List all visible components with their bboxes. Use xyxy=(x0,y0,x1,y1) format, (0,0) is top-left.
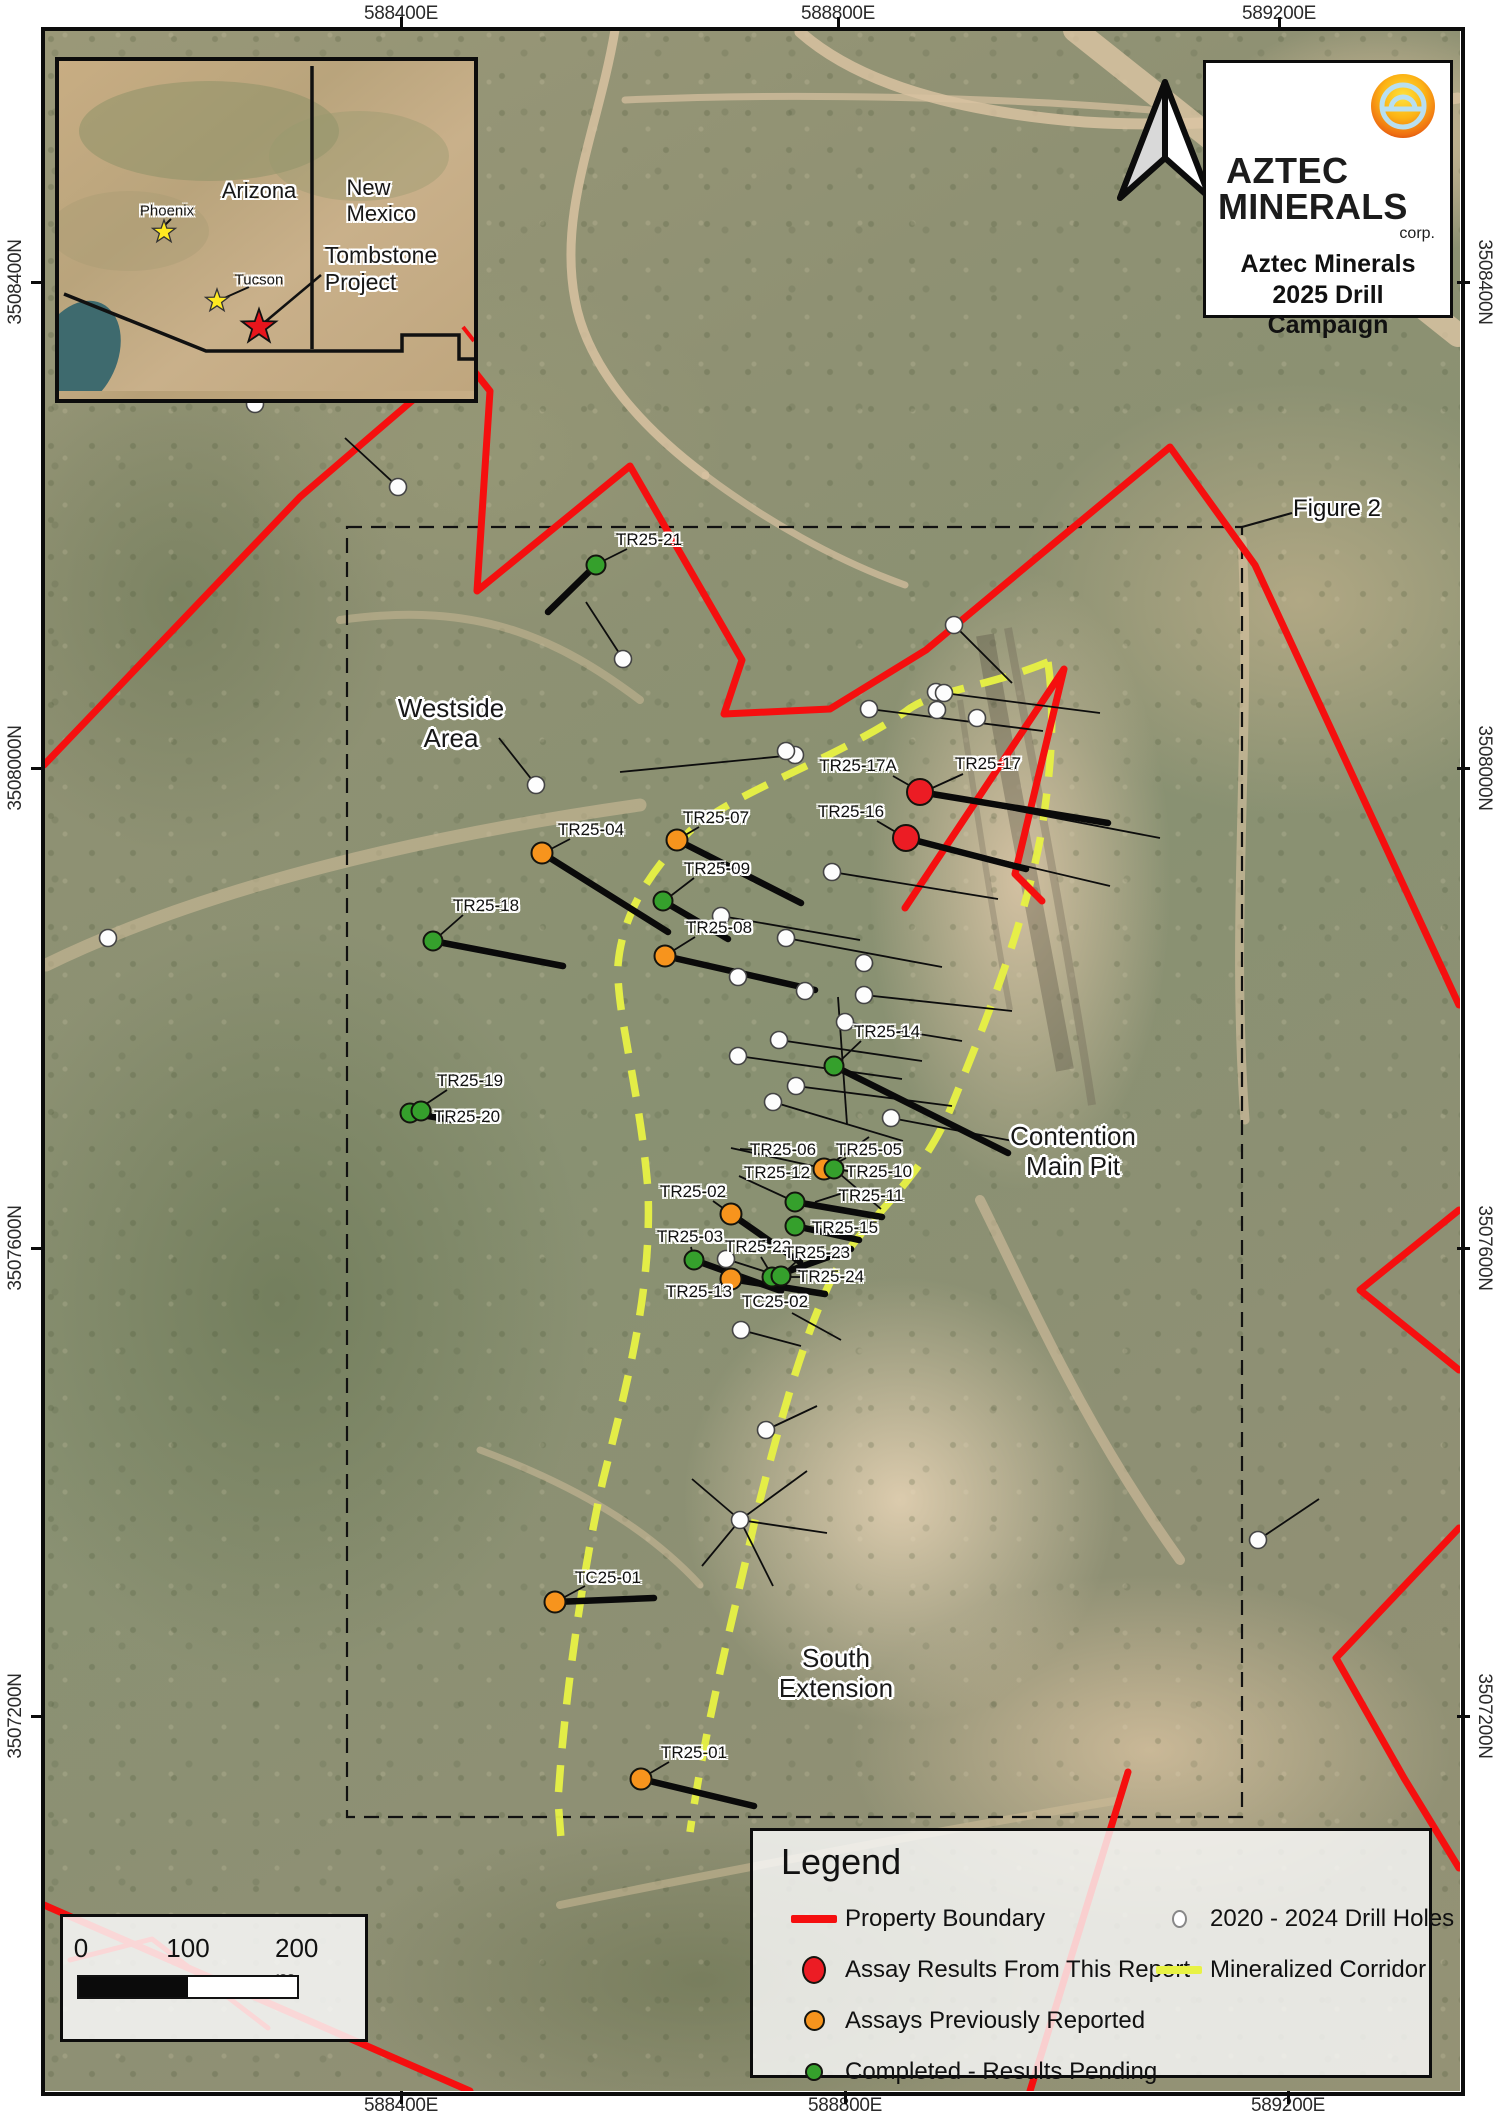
legend-item-label: Completed - Results Pending xyxy=(845,2058,1157,2086)
inset-label-arizona: Arizona xyxy=(222,178,297,204)
drill-hole-label: TC25-02 xyxy=(742,1292,808,1312)
drill-hole-label: TR25-15 xyxy=(812,1218,878,1238)
drill-hole-label: TR25-17 xyxy=(955,754,1021,774)
drill-hole-label: TR25-21 xyxy=(616,530,682,550)
axis-label-right: 3507600N xyxy=(1473,1205,1495,1290)
drill-hole-label: TR25-13 xyxy=(666,1282,732,1302)
legend-item: 2020 - 2024 Drill Holes xyxy=(1148,1893,1428,1944)
legend: Legend Property BoundaryAssay Results Fr… xyxy=(750,1828,1432,2078)
axis-tick xyxy=(31,1247,44,1250)
drill-hole-label: TR25-06 xyxy=(750,1140,816,1160)
axis-label-right: 3508400N xyxy=(1473,239,1495,324)
drill-hole-label: TR25-19 xyxy=(437,1071,503,1091)
scale-bar-graphic xyxy=(77,1975,299,1999)
legend-item: Assay Results From This Report xyxy=(783,1944,1153,1995)
area-label-westside-area: Westside Area xyxy=(398,694,504,754)
axis-tick xyxy=(31,1715,44,1718)
legend-item-label: Assays Previously Reported xyxy=(845,2007,1145,2035)
inset-label-tucson: Tucson xyxy=(235,272,284,289)
axis-tick xyxy=(400,2091,403,2104)
axis-tick xyxy=(1278,17,1281,30)
axis-tick xyxy=(400,17,403,30)
legend-swatch-line-red xyxy=(791,1915,837,1923)
inset-label-phoenix: Phoenix xyxy=(140,203,194,220)
drill-hole-label: TR25-11 xyxy=(839,1186,904,1206)
axis-tick xyxy=(31,281,44,284)
axis-tick xyxy=(31,767,44,770)
legend-item: Assays Previously Reported xyxy=(783,1995,1153,2046)
legend-item: Property Boundary xyxy=(783,1893,1153,1944)
inset-label-tombstone-project: Tombstone Project xyxy=(325,242,438,296)
dot-green-swatch xyxy=(783,2063,845,2081)
dot-white-swatch xyxy=(1148,1910,1210,1928)
legend-item-label: Assay Results From This Report xyxy=(845,1956,1190,1984)
inset-label-new-mexico: New Mexico xyxy=(347,175,432,227)
legend-column-2: 2020 - 2024 Drill HolesMineralized Corri… xyxy=(1148,1893,1428,1995)
area-label-contention-main-pit: Contention Main Pit xyxy=(1010,1122,1136,1182)
legend-item-label: Property Boundary xyxy=(845,1905,1045,1933)
axis-label-left: 3508400N xyxy=(5,239,27,324)
legend-item: Completed - Results Pending xyxy=(783,2046,1153,2097)
axis-label-right: 3507200N xyxy=(1473,1673,1495,1758)
drill-hole-label: TR25-08 xyxy=(686,918,752,938)
drill-hole-label: TR25-23 xyxy=(784,1243,850,1263)
drill-hole-label: TR25-07 xyxy=(683,808,749,828)
legend-item: Mineralized Corridor xyxy=(1148,1944,1428,1995)
axis-tick xyxy=(1287,2091,1290,2104)
axis-label-right: 3508000N xyxy=(1473,725,1495,810)
line-yellow-swatch xyxy=(1148,1966,1210,1974)
drill-hole-label: TR25-18 xyxy=(453,896,519,916)
drill-hole-label: TR25-20 xyxy=(434,1107,500,1127)
aztec-minerals-logo-icon xyxy=(1368,71,1438,141)
drill-hole-label: TR25-24 xyxy=(798,1267,864,1287)
company-name-line1: AZTEC xyxy=(1226,153,1349,189)
scale-bar-label: 0 xyxy=(74,1933,88,1964)
legend-title: Legend xyxy=(781,1841,901,1883)
legend-item-label: 2020 - 2024 Drill Holes xyxy=(1210,1905,1454,1933)
dot-red-swatch xyxy=(783,1956,845,1984)
legend-swatch-dot-orange xyxy=(804,2010,825,2031)
axis-label-left: 3507600N xyxy=(5,1205,27,1290)
title-block: AZTEC MINERALS corp. Aztec Minerals 2025… xyxy=(1203,60,1453,318)
map-title: Aztec Minerals 2025 Drill Campaign xyxy=(1206,249,1450,341)
drill-hole-label: TR25-02 xyxy=(660,1182,726,1202)
drill-hole-label: TR25-22 xyxy=(725,1237,791,1257)
scale-bar: 0100200 m xyxy=(60,1914,368,2042)
drill-hole-label: TR25-17A xyxy=(819,756,896,776)
drill-hole-label: TR25-04 xyxy=(558,820,624,840)
axis-label-left: 3508000N xyxy=(5,725,27,810)
drill-hole-label: TR25-16 xyxy=(818,802,884,822)
drill-hole-label: TR25-14 xyxy=(854,1022,920,1042)
legend-swatch-dot-white xyxy=(1172,1910,1187,1928)
inset-location-map: Arizona New Mexico Phoenix Tucson Tombst… xyxy=(55,57,478,403)
area-label-south-extension: South Extension xyxy=(779,1644,893,1704)
dot-orange-swatch xyxy=(783,2010,845,2031)
map-figure-page: TR25-21TR25-17ATR25-17TR25-16TR25-04TR25… xyxy=(0,0,1500,2121)
drill-hole-label: TR25-05 xyxy=(836,1140,902,1160)
scale-bar-black-segment xyxy=(79,1977,188,1997)
drill-hole-label: TR25-03 xyxy=(657,1227,723,1247)
drill-hole-label: TR25-01 xyxy=(661,1743,727,1763)
legend-item-label: Mineralized Corridor xyxy=(1210,1956,1426,1984)
scale-bar-label: 100 xyxy=(166,1933,209,1964)
drill-hole-label: TC25-01 xyxy=(575,1568,641,1588)
company-name-line2: MINERALS xyxy=(1218,189,1408,225)
legend-swatch-line-yellow xyxy=(1156,1966,1202,1974)
line-red-swatch xyxy=(783,1915,845,1923)
drill-hole-label: TR25-12 xyxy=(744,1163,810,1183)
figure2-label: Figure 2 xyxy=(1293,495,1381,523)
axis-tick xyxy=(837,17,840,30)
legend-swatch-dot-red xyxy=(802,1956,826,1984)
company-suffix: corp. xyxy=(1399,225,1435,243)
legend-column-1: Property BoundaryAssay Results From This… xyxy=(783,1893,1153,2097)
legend-swatch-dot-green xyxy=(805,2063,823,2081)
drill-hole-label: TR25-09 xyxy=(684,859,750,879)
drill-hole-label: TR25-10 xyxy=(846,1162,912,1182)
axis-label-left: 3507200N xyxy=(5,1673,27,1758)
